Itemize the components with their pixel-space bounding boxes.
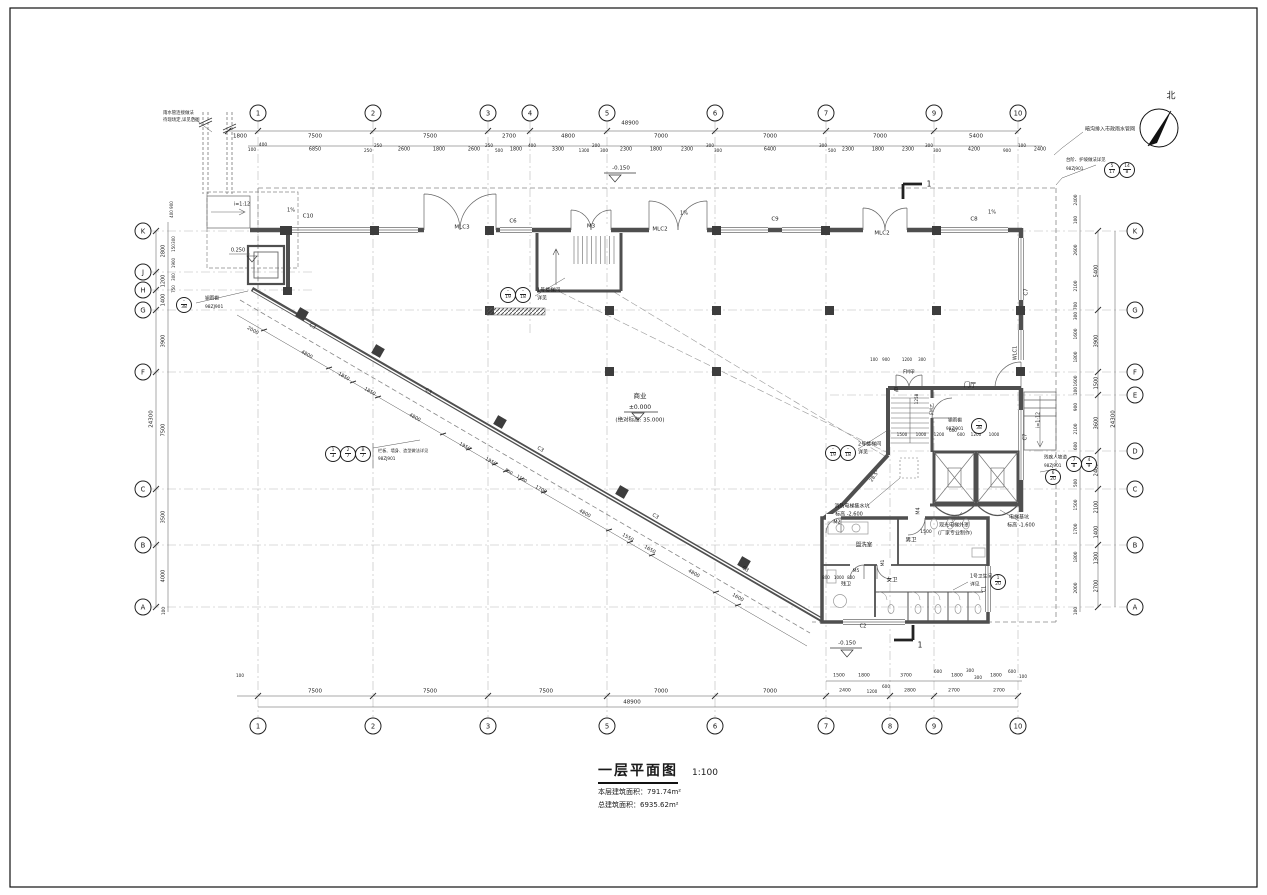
text-label: C6	[509, 219, 516, 225]
text-label: 2400	[839, 690, 851, 695]
stair-1	[537, 233, 621, 291]
text-label: 1800	[951, 675, 963, 680]
text-label: 7000	[873, 134, 887, 140]
grid-bubble: G	[135, 302, 152, 319]
text-label: 2100	[1075, 424, 1079, 435]
text-label: 1800	[872, 149, 884, 154]
text-label: 300	[706, 144, 714, 148]
grid-bubble: D	[1127, 443, 1144, 460]
text-label: 1800	[990, 675, 1002, 680]
text-label: 钢雨棚	[948, 420, 962, 425]
text-label: 1500	[833, 675, 845, 680]
text-label: 400	[528, 144, 536, 148]
text-label: 商业	[634, 393, 647, 400]
text-label: 消防电梯集水坑	[834, 505, 869, 510]
text-label: 150	[172, 244, 176, 252]
text-label: 1000	[916, 433, 927, 437]
detail-callout: –18	[840, 445, 856, 461]
text-label: 1	[918, 641, 923, 649]
text-label: 详见	[970, 584, 980, 589]
sheet-border	[10, 8, 1257, 887]
text-label: 2300	[842, 149, 854, 154]
columns	[280, 226, 1025, 376]
grid-bubble: 8	[882, 718, 899, 735]
text-label: 标高 -2.600	[835, 513, 863, 518]
text-label: 700	[1075, 302, 1079, 310]
text-label: 2400	[1075, 195, 1079, 206]
text-label: 1600	[1075, 376, 1079, 387]
detail-callout: –19	[500, 287, 516, 303]
text-label: 1700	[1075, 524, 1079, 535]
text-label: 2600	[398, 149, 410, 154]
grid-bubble: B	[135, 537, 152, 554]
detail-callout: B7	[355, 446, 371, 462]
text-label: 1800	[650, 149, 662, 154]
text-label: 300	[600, 149, 608, 153]
text-label: 3900	[162, 335, 167, 348]
text-label: FM甲	[903, 372, 915, 377]
text-label: 1500	[1095, 377, 1100, 390]
text-label: 600	[882, 685, 890, 689]
text-label: 5400	[1095, 265, 1100, 278]
detail-callout: 120	[990, 574, 1006, 590]
grid-bubble: 5	[599, 718, 616, 735]
text-label: MLC2	[652, 227, 667, 233]
text-label: 300	[714, 149, 722, 153]
grid-bubble: 6	[707, 718, 724, 735]
text-label: ±0.000	[629, 405, 651, 411]
text-label: 48900	[623, 700, 641, 706]
text-label: 1500	[920, 531, 931, 536]
text-label: 24300	[1111, 410, 1117, 428]
text-label: 4000	[162, 570, 167, 583]
text-label: 800	[847, 576, 855, 580]
detail-callout: 78	[1066, 456, 1082, 472]
text-label: 500	[1075, 479, 1079, 487]
text-label: 100	[236, 674, 244, 678]
text-label: 电	[893, 389, 898, 394]
grid-bubble: 7	[818, 718, 835, 735]
text-label: M2	[833, 522, 840, 527]
text-label: 标高 -1.600	[1007, 524, 1035, 529]
text-label: 4800	[561, 134, 575, 140]
text-label: C8	[970, 217, 977, 223]
detail-callout: –19	[825, 445, 841, 461]
text-label: 1%	[680, 212, 688, 217]
text-label: 100	[1075, 216, 1079, 224]
text-label: 7500	[423, 689, 437, 695]
text-label: 98ZJ901	[946, 427, 963, 431]
grid-bubble: A	[135, 599, 152, 616]
text-label: 250	[374, 144, 382, 148]
text-label: FM乙	[932, 403, 937, 415]
text-label: 300	[819, 144, 827, 148]
grid-bubble: F	[1127, 364, 1144, 381]
grid-bubble: 2	[365, 718, 382, 735]
text-label: 7500	[423, 134, 437, 140]
detail-callout: 620	[1045, 469, 1061, 485]
text-label: 1800	[510, 149, 522, 154]
text-label: 1500	[897, 433, 908, 437]
text-label: 0.250	[231, 249, 245, 254]
text-label: M5	[853, 570, 860, 575]
text-label: 残卫	[841, 583, 851, 588]
text-label: 2300	[902, 149, 914, 154]
text-label: 3600	[1095, 417, 1100, 430]
text-label: 1200	[934, 433, 945, 437]
grid-bubble: 2	[365, 105, 382, 122]
text-label: MLC2	[874, 231, 889, 237]
grid-bubble: 9	[926, 105, 943, 122]
text-label: 100	[870, 358, 878, 362]
text-label: 1800	[433, 149, 445, 154]
text-label: 2600	[468, 149, 480, 154]
text-label: 98ZJ901	[378, 457, 395, 461]
text-label: 电梯基坑	[1009, 516, 1029, 521]
grid-bubble: 4	[522, 105, 539, 122]
text-label: 24300	[149, 410, 155, 428]
drawing-sheet: 4890018007500750027004800700070007000540…	[0, 0, 1267, 895]
text-label: 98ZJ901	[1066, 167, 1083, 171]
grid-bubble: 7	[818, 105, 835, 122]
grid-bubble: J	[135, 264, 152, 281]
detail-callout: –18	[515, 287, 531, 303]
top-wall	[250, 194, 1022, 392]
text-label: -0.150	[612, 166, 630, 172]
text-label: 钢雨棚	[205, 298, 219, 303]
detail-callout: 13	[325, 446, 341, 462]
text-label: 盥洗室	[856, 543, 873, 549]
text-label: C1	[984, 586, 989, 592]
text-label: 300	[918, 358, 926, 362]
text-label: 1300	[579, 149, 590, 153]
text-label: -0.150	[838, 641, 856, 647]
text-label: 2800	[162, 245, 167, 258]
text-label: 1200	[162, 275, 167, 288]
text-label: 300	[925, 144, 933, 148]
text-label: 2700	[1095, 580, 1100, 593]
text-label: 详见	[537, 297, 547, 302]
text-label: 4200	[968, 149, 980, 154]
text-label: 1258	[915, 394, 919, 405]
text-label: 300	[172, 273, 176, 281]
text-label: 100	[1018, 144, 1026, 148]
text-label: 雨水管连接做法	[163, 112, 194, 116]
text-label: 1400	[162, 294, 167, 307]
text-label: 750	[172, 285, 176, 293]
grid-bubble: K	[135, 223, 152, 240]
text-label: C9	[771, 217, 778, 223]
grid-bubble: H	[135, 282, 152, 299]
text-label: 2700	[948, 690, 960, 695]
text-label: C10	[303, 214, 314, 220]
door-arcs	[424, 194, 922, 388]
text-label: 1400	[1095, 526, 1100, 539]
text-label: M1	[882, 560, 887, 567]
text-label: 600	[934, 670, 942, 674]
text-label: 6400	[764, 149, 776, 154]
grid-bubble: F	[135, 364, 152, 381]
text-label: 1200	[867, 690, 878, 694]
detail-callout: –38	[971, 418, 987, 434]
text-label: 100	[1075, 387, 1079, 395]
text-label: 600	[957, 433, 965, 437]
text-label: 女卫	[886, 578, 897, 584]
text-label: 98ZJ901	[1044, 464, 1061, 468]
text-label: 7000	[763, 134, 777, 140]
text-label: 7000	[763, 689, 777, 695]
text-label: 门厅	[964, 383, 976, 389]
text-label: 详见	[858, 451, 868, 456]
text-label: M4	[918, 507, 923, 514]
text-label: 7000	[654, 689, 668, 695]
total-area-text: 总建筑面积：6935.62m²	[598, 800, 718, 810]
grid-bubble: 6	[707, 105, 724, 122]
text-label: 男卫	[905, 538, 916, 544]
grid-bubble: 3	[480, 718, 497, 735]
text-label: 2100	[1095, 501, 1100, 514]
grid-bubble: 9	[926, 718, 943, 735]
text-label: i=1:12	[234, 204, 250, 209]
text-label: 1	[927, 180, 932, 188]
text-label: (厂家专业制作)	[938, 532, 972, 537]
text-label: 500	[495, 149, 503, 153]
text-label: 3500	[162, 511, 167, 524]
drawing-title: 一层平面图	[598, 760, 678, 784]
text-label: 1800	[1075, 352, 1079, 363]
floor-area-text: 本层建筑面积：791.74m²	[598, 787, 718, 797]
text-label: M3	[587, 224, 595, 230]
text-label: 98ZJ901	[205, 306, 223, 310]
grid-bubble: 10	[1010, 105, 1027, 122]
text-label: 1000	[834, 576, 844, 580]
grid-bubble: 1	[250, 718, 267, 735]
text-label: 7500	[162, 424, 167, 437]
text-label: 200	[592, 144, 600, 148]
text-label: 7500	[308, 689, 322, 695]
text-label: 1号卫生间	[970, 576, 992, 581]
text-label: 400	[259, 144, 267, 148]
grid-bubble: E	[1127, 387, 1144, 404]
hatch-strip	[487, 308, 545, 315]
text-label: 2700	[993, 690, 1005, 695]
text-label: 300	[172, 236, 176, 244]
drawing-scale: 1:100	[692, 768, 718, 778]
text-label: 1%	[287, 209, 295, 214]
text-label: 100	[1019, 675, 1027, 679]
north-label: 北	[1166, 93, 1175, 102]
text-label: 300	[966, 669, 974, 673]
text-label: 800	[822, 576, 830, 580]
text-label: 250	[364, 149, 372, 153]
text-label: 2700	[502, 134, 516, 140]
text-label: WLC1	[1014, 346, 1019, 360]
text-label: 暗沟排入市政雨水管网	[1085, 128, 1135, 133]
text-label: 1900	[172, 258, 176, 268]
text-label: 1号楼梯间	[537, 289, 560, 294]
text-label: 6850	[309, 149, 321, 154]
text-label: 300	[1075, 312, 1079, 320]
detail-callout: 517	[1104, 162, 1120, 178]
text-label: (绝对标高: 35.000)	[615, 418, 664, 424]
grid-bubble: C	[135, 481, 152, 498]
text-label: 600	[1008, 670, 1016, 674]
text-label: 100	[248, 149, 256, 153]
text-label: 600	[1075, 442, 1079, 450]
text-label: 待现场定,详见后图	[163, 119, 200, 123]
text-label: i=1:12	[1038, 412, 1043, 428]
grid-bubble: 3	[480, 105, 497, 122]
text-label: MLC3	[454, 225, 469, 231]
grid-bubble: 5	[599, 105, 616, 122]
grid-bubble: A	[1127, 599, 1144, 616]
text-label: 1600	[1075, 329, 1079, 340]
text-label: 1200	[902, 358, 912, 362]
text-label: 1800	[1075, 552, 1079, 563]
text-label: 1800	[858, 675, 870, 680]
text-label: 5400	[969, 134, 983, 140]
text-label: 7500	[308, 134, 322, 140]
text-label: 500	[828, 149, 836, 153]
detail-callout: 27	[340, 446, 356, 462]
text-label: 2400	[1034, 149, 1046, 154]
text-label: 2300	[681, 149, 693, 154]
text-label: C2	[860, 625, 867, 630]
text-label: C7	[1024, 288, 1030, 295]
grid-bubble: 1	[250, 105, 267, 122]
text-label: 2号楼梯间	[858, 443, 881, 448]
text-label: 900	[1003, 149, 1011, 153]
text-label: 400	[170, 210, 174, 218]
text-label: 1500	[1075, 500, 1079, 511]
text-label: 栏板、墙身、造型做法详见	[378, 449, 428, 453]
text-label: 2800	[904, 690, 916, 695]
text-label: 观光电梯外罩	[939, 524, 969, 529]
text-label: 100	[162, 607, 166, 615]
text-label: C7	[1024, 434, 1029, 441]
detail-callout: 148	[1119, 162, 1135, 178]
text-label: 1300	[1095, 552, 1100, 565]
grid-bubble: G	[1127, 302, 1144, 319]
text-label: 48900	[621, 121, 639, 127]
text-label: 900	[882, 358, 890, 362]
text-label: 2000	[1075, 583, 1079, 594]
section-marks	[894, 184, 922, 640]
detail-callout: –38	[176, 297, 192, 313]
text-label: 2600	[1075, 245, 1079, 256]
text-label: 7500	[539, 689, 553, 695]
detail-callout: 49	[1081, 456, 1097, 472]
text-label: 100	[1075, 607, 1079, 615]
title-block: 一层平面图1:100 本层建筑面积：791.74m² 总建筑面积：6935.62…	[598, 760, 718, 810]
grid-bubble: K	[1127, 223, 1144, 240]
text-label: 1800	[233, 134, 247, 140]
text-label: 3300	[552, 149, 564, 154]
text-label: 3900	[1095, 335, 1100, 348]
text-label: 1000	[989, 433, 1000, 437]
text-label: 2100	[1075, 281, 1079, 292]
text-label: 900	[1075, 403, 1079, 411]
text-label: 300	[933, 149, 941, 153]
text-label: 250	[485, 144, 493, 148]
north-arrow-icon	[1140, 109, 1178, 147]
text-label: 台阶、护坡做法详见	[1066, 159, 1106, 163]
text-label: 900	[170, 201, 174, 209]
grid-bubble: 10	[1010, 718, 1027, 735]
grid-bubble: C	[1127, 481, 1144, 498]
grid-bubble: B	[1127, 537, 1144, 554]
text-label: 7000	[654, 134, 668, 140]
text-label: 残疾人坡道	[1044, 457, 1067, 462]
text-label: 1%	[988, 211, 996, 216]
text-label: 300	[974, 676, 982, 680]
text-label: 2300	[620, 149, 632, 154]
text-label: 3700	[900, 675, 912, 680]
